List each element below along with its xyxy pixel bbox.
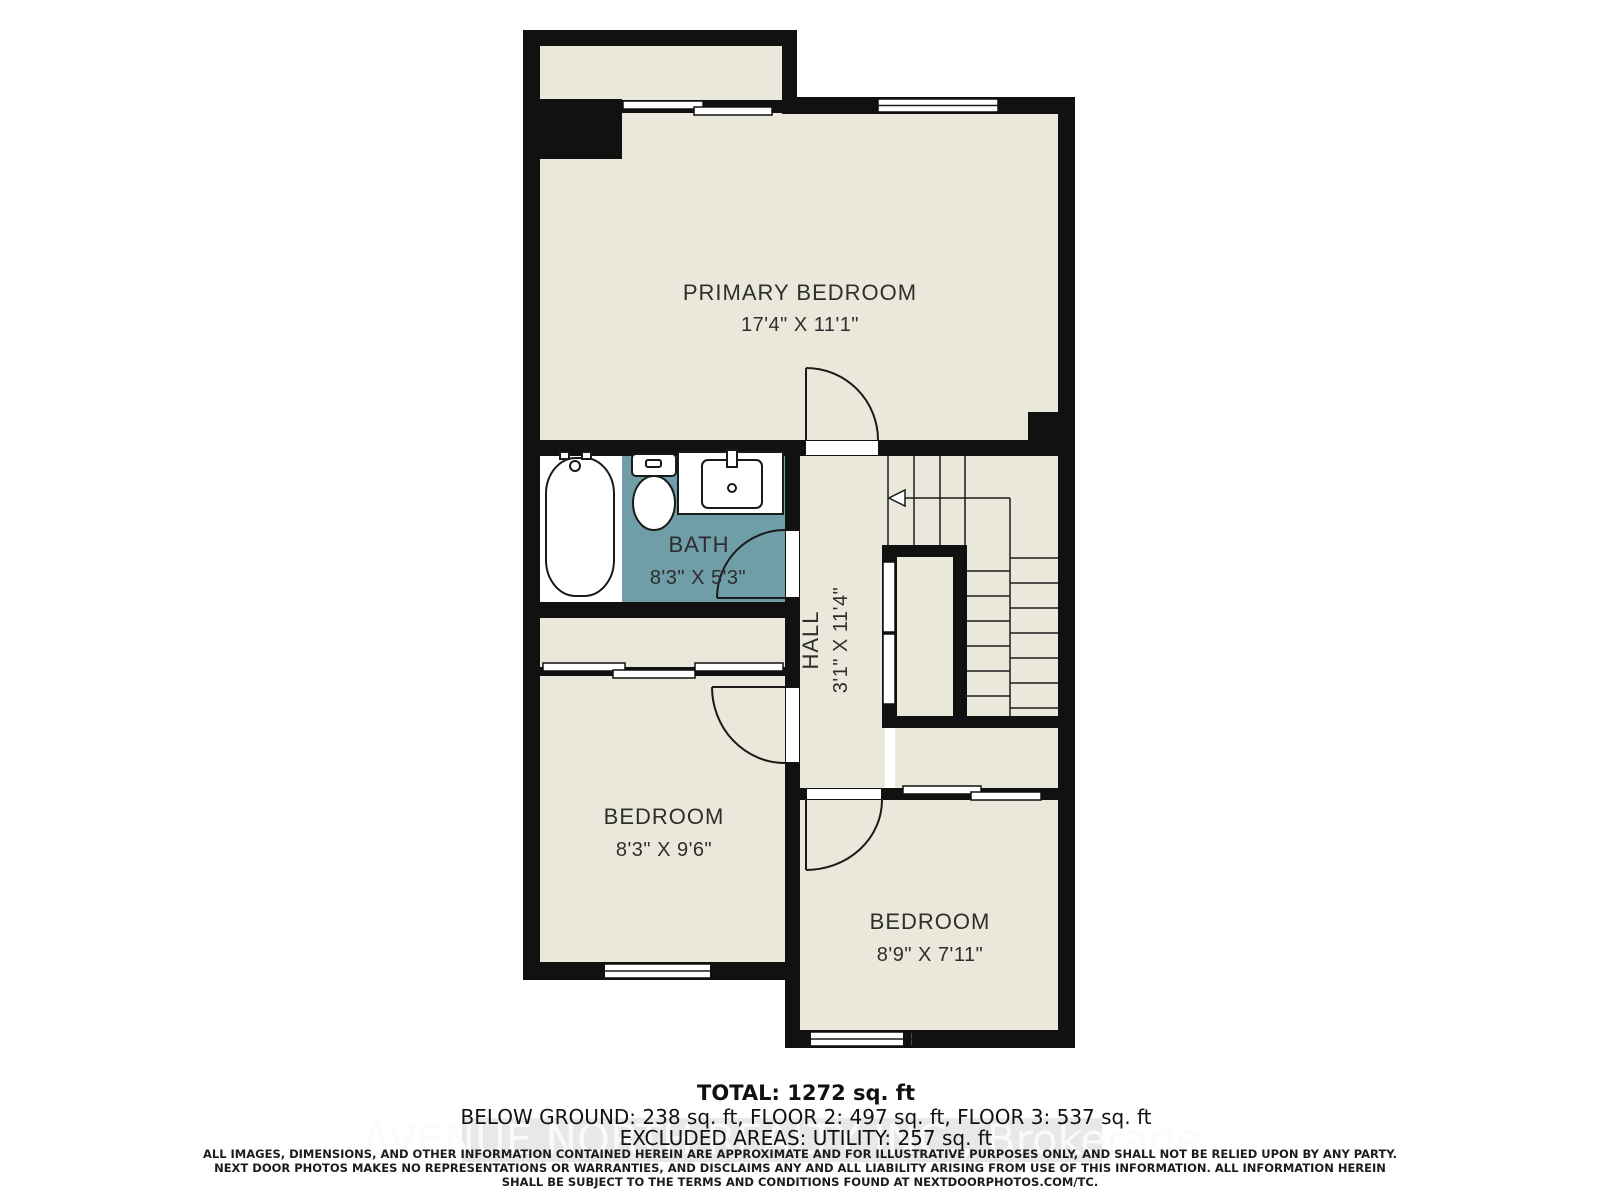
room-upper-closet <box>535 40 790 106</box>
closet-door <box>883 634 895 704</box>
label-bedroom-left: BEDROOM <box>604 804 725 829</box>
footer: AVENUE NORTH REALTY INC., Brokerage TOTA… <box>203 1081 1397 1189</box>
disclaimer-line-2: NEXT DOOR PHOTOS MAKES NO REPRESENTATION… <box>214 1161 1386 1175</box>
door-opening <box>807 789 881 799</box>
dims-bath: 8'3" X 5'3" <box>650 567 746 589</box>
label-primary-bedroom: PRIMARY BEDROOM <box>683 280 917 305</box>
floor-plan: PRIMARY BEDROOM 17'4" X 11'1" BATH 8'3" … <box>0 0 1600 1200</box>
label-bath: BATH <box>668 532 729 557</box>
dims-hall: 3'1" X 11'4" <box>830 587 852 693</box>
window <box>878 99 998 112</box>
sliding-door <box>613 670 695 678</box>
dims-primary-bedroom: 17'4" X 11'1" <box>741 314 859 336</box>
total-area-text: TOTAL: 1272 sq. ft <box>697 1081 915 1105</box>
bedroom-right-closet <box>895 722 1063 792</box>
hall-closet <box>895 552 957 720</box>
window <box>598 963 717 979</box>
bathtub-icon <box>546 452 614 596</box>
dims-bedroom-left: 8'3" X 9'6" <box>616 839 712 861</box>
door-opening <box>786 531 799 597</box>
label-hall: HALL <box>798 610 823 669</box>
sliding-door <box>971 792 1041 800</box>
label-bedroom-right: BEDROOM <box>870 909 991 934</box>
door-opening <box>786 688 799 762</box>
sliding-door <box>695 663 783 671</box>
sliding-door <box>623 101 703 109</box>
sink-vanity-icon <box>678 450 783 514</box>
floor-plan-page: PRIMARY BEDROOM 17'4" X 11'1" BATH 8'3" … <box>0 0 1600 1200</box>
sliding-door <box>903 786 981 794</box>
toilet-icon <box>632 454 676 530</box>
disclaimer-line-1: ALL IMAGES, DIMENSIONS, AND OTHER INFORM… <box>203 1147 1397 1161</box>
dims-bedroom-right: 8'9" X 7'11" <box>877 944 983 966</box>
window <box>803 1031 912 1047</box>
disclaimer-line-3: SHALL BE SUBJECT TO THE TERMS AND CONDIT… <box>502 1175 1098 1189</box>
closet-door <box>883 562 895 632</box>
door-opening <box>806 441 878 455</box>
sliding-door <box>694 107 772 115</box>
